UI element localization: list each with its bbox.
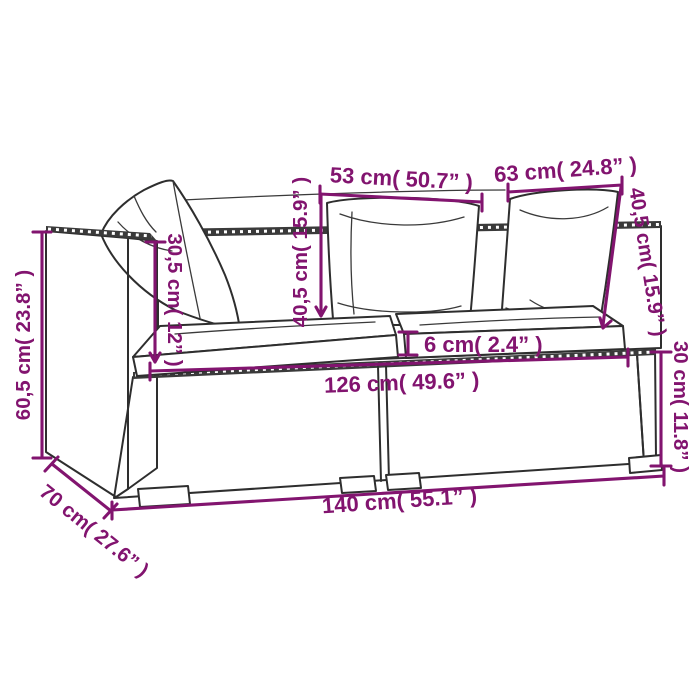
dimension-line xyxy=(33,232,51,458)
dimension-label-seat-width: 126 cm( 49.6” ) xyxy=(324,367,480,397)
dimension-label-base-height: 30 cm( 11.8” ) xyxy=(669,341,692,473)
dimension-label-back-right-height: 40,5 cm( 15.9” ) xyxy=(624,186,670,338)
sofa-foot xyxy=(629,455,662,473)
base-right-face xyxy=(637,349,656,463)
dimension-back-left-height: 40,5 cm( 15.9” ) xyxy=(289,177,326,327)
back-cushion-left xyxy=(327,198,479,325)
sofa-foot xyxy=(138,486,190,507)
dimension-label-back-right-width: 63 cm( 24.8” ) xyxy=(493,152,637,187)
dimension-label-seat-cushion-thickness: 6 cm( 2.4” ) xyxy=(424,332,543,357)
dimension-label-back-left-width: 53 cm( 50.7” ) xyxy=(329,162,473,194)
dimension-line xyxy=(651,352,671,466)
dimension-base-height: 30 cm( 11.8” ) xyxy=(651,341,692,473)
dimension-line xyxy=(316,194,326,316)
sofa-line-drawing xyxy=(46,180,662,507)
dimension-label-armrest-height: 30,5 cm( 12” ) xyxy=(163,233,186,366)
sofa-dimension-diagram: 60,5 cm( 23.8” ) 70 cm( 27.6” ) 140 cm( … xyxy=(0,0,700,700)
dimension-label-total-depth: 70 cm( 27.6” ) xyxy=(35,480,153,582)
dimension-label-back-left-height: 40,5 cm( 15.9” ) xyxy=(289,177,312,327)
dimension-label-total-height: 60,5 cm( 23.8” ) xyxy=(12,270,35,420)
dimension-total-depth: 70 cm( 27.6” ) xyxy=(35,457,153,582)
